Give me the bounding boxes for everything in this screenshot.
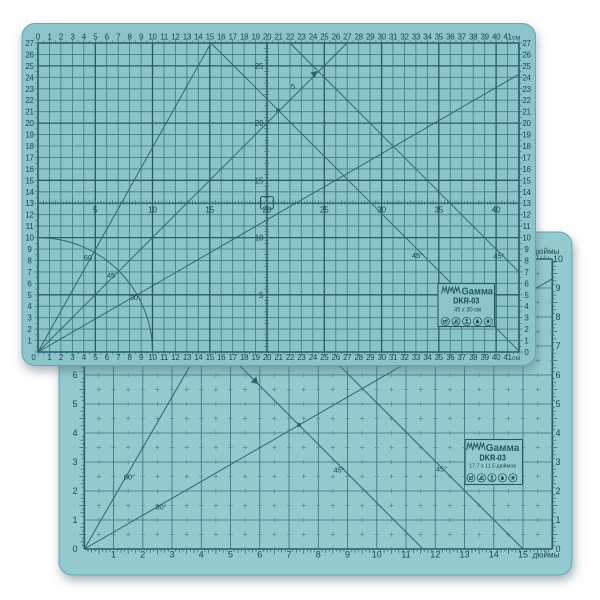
svg-text:38: 38: [469, 33, 478, 42]
svg-text:16: 16: [217, 33, 226, 42]
svg-text:30: 30: [377, 353, 386, 362]
svg-text:25: 25: [320, 33, 329, 42]
svg-text:23: 23: [522, 85, 531, 94]
svg-text:см: см: [512, 35, 520, 42]
svg-text:6: 6: [72, 370, 77, 380]
svg-text:11: 11: [26, 222, 35, 231]
svg-text:15: 15: [206, 33, 215, 42]
svg-text:29: 29: [366, 33, 375, 42]
svg-text:17: 17: [522, 153, 531, 162]
svg-text:18: 18: [240, 353, 249, 362]
svg-text:38: 38: [469, 353, 478, 362]
svg-text:20: 20: [263, 353, 272, 362]
svg-text:дюймы: дюймы: [532, 551, 559, 560]
svg-text:DKR-03: DKR-03: [479, 453, 506, 463]
svg-text:15: 15: [205, 206, 214, 215]
svg-text:22: 22: [25, 96, 34, 105]
svg-text:40: 40: [492, 353, 501, 362]
svg-text:36: 36: [446, 33, 455, 42]
svg-text:18: 18: [25, 142, 34, 151]
svg-text:21: 21: [522, 108, 531, 117]
svg-text:2: 2: [72, 486, 77, 496]
svg-text:16: 16: [522, 165, 531, 174]
svg-text:16: 16: [25, 165, 34, 174]
svg-text:12: 12: [522, 211, 531, 220]
svg-text:16: 16: [217, 353, 226, 362]
svg-text:26: 26: [332, 353, 341, 362]
svg-text:17: 17: [229, 353, 238, 362]
svg-text:45°: 45°: [412, 251, 423, 260]
svg-text:7: 7: [286, 550, 291, 560]
svg-text:20: 20: [263, 33, 272, 42]
svg-text:6: 6: [257, 550, 262, 560]
svg-text:5: 5: [555, 399, 560, 409]
svg-text:14: 14: [194, 353, 203, 362]
svg-text:33: 33: [412, 33, 421, 42]
svg-text:25: 25: [522, 62, 531, 71]
svg-text:1: 1: [555, 515, 560, 525]
svg-text:27: 27: [25, 39, 34, 48]
svg-text:19: 19: [522, 131, 531, 140]
svg-text:5: 5: [72, 399, 77, 409]
svg-text:27: 27: [343, 33, 352, 42]
svg-text:20: 20: [522, 119, 531, 128]
svg-text:39: 39: [480, 33, 489, 42]
svg-text:7: 7: [555, 341, 560, 351]
svg-text:60: 60: [84, 253, 92, 262]
svg-text:9: 9: [555, 283, 560, 293]
svg-text:23: 23: [25, 85, 34, 94]
svg-text:30°: 30°: [155, 503, 166, 512]
svg-text:5: 5: [259, 291, 264, 300]
svg-text:3: 3: [555, 457, 560, 467]
svg-text:15: 15: [25, 176, 34, 185]
svg-text:27: 27: [343, 353, 352, 362]
svg-text:см: см: [512, 355, 520, 362]
svg-text:10: 10: [255, 234, 264, 243]
svg-text:45: 45: [107, 271, 115, 280]
svg-text:20: 20: [25, 119, 34, 128]
svg-text:30: 30: [377, 33, 386, 42]
svg-text:15: 15: [255, 176, 264, 185]
svg-text:24: 24: [522, 73, 531, 82]
svg-text:13: 13: [459, 550, 469, 560]
svg-text:32: 32: [400, 33, 409, 42]
svg-text:23: 23: [297, 33, 306, 42]
svg-text:14: 14: [489, 550, 499, 560]
svg-text:31: 31: [389, 353, 398, 362]
svg-text:11: 11: [523, 222, 532, 231]
svg-text:15: 15: [518, 550, 528, 560]
svg-text:13: 13: [183, 353, 192, 362]
svg-text:29: 29: [366, 353, 375, 362]
svg-text:11: 11: [160, 353, 169, 362]
svg-text:21: 21: [274, 33, 283, 42]
svg-text:35: 35: [435, 33, 444, 42]
svg-text:25: 25: [25, 62, 34, 71]
svg-text:34: 34: [423, 353, 432, 362]
svg-text:18: 18: [522, 142, 531, 151]
svg-text:12: 12: [171, 33, 180, 42]
svg-text:22: 22: [286, 353, 295, 362]
svg-text:8: 8: [555, 312, 560, 322]
svg-text:DKR-03: DKR-03: [453, 296, 479, 306]
svg-text:4: 4: [199, 550, 204, 560]
svg-text:21: 21: [25, 108, 34, 117]
svg-text:34: 34: [423, 33, 432, 42]
svg-text:17.7 x 11.5 дюймов: 17.7 x 11.5 дюймов: [469, 463, 516, 470]
svg-text:35: 35: [435, 353, 444, 362]
svg-text:2: 2: [555, 486, 560, 496]
svg-text:12: 12: [171, 353, 180, 362]
svg-text:8: 8: [316, 550, 321, 560]
svg-text:5: 5: [93, 206, 98, 215]
svg-text:10: 10: [148, 33, 157, 42]
svg-text:13: 13: [25, 199, 34, 208]
svg-text:19: 19: [25, 131, 34, 140]
svg-text:37: 37: [458, 353, 467, 362]
svg-text:10: 10: [372, 550, 382, 560]
svg-text:24: 24: [309, 33, 318, 42]
svg-text:1: 1: [111, 550, 116, 560]
svg-text:22: 22: [522, 96, 531, 105]
svg-text:10: 10: [25, 234, 34, 243]
svg-text:26: 26: [522, 50, 531, 59]
svg-text:28: 28: [355, 353, 364, 362]
svg-text:13: 13: [183, 33, 192, 42]
svg-text:36: 36: [446, 353, 455, 362]
svg-text:11: 11: [160, 33, 169, 42]
svg-text:14: 14: [522, 188, 531, 197]
svg-text:26: 26: [332, 33, 341, 42]
svg-text:10: 10: [148, 353, 157, 362]
svg-text:25: 25: [320, 353, 329, 362]
svg-text:30: 30: [130, 293, 138, 302]
svg-text:45°: 45°: [333, 466, 344, 475]
svg-text:45°: 45°: [493, 252, 504, 261]
svg-text:12: 12: [25, 211, 34, 220]
svg-text:13: 13: [522, 199, 531, 208]
svg-text:3: 3: [169, 550, 174, 560]
svg-text:18: 18: [240, 33, 249, 42]
svg-text:19: 19: [251, 33, 260, 42]
svg-text:40: 40: [492, 206, 501, 215]
svg-text:39: 39: [480, 353, 489, 362]
svg-text:19: 19: [251, 353, 260, 362]
svg-text:37: 37: [458, 33, 467, 42]
svg-text:17: 17: [25, 153, 34, 162]
svg-text:17: 17: [229, 33, 238, 42]
svg-text:5: 5: [291, 82, 295, 91]
svg-text:23: 23: [297, 353, 306, 362]
svg-text:3: 3: [72, 457, 77, 467]
svg-text:10: 10: [148, 206, 157, 215]
svg-text:12: 12: [430, 550, 440, 560]
svg-text:28: 28: [355, 33, 364, 42]
svg-text:15: 15: [522, 176, 531, 185]
svg-text:31: 31: [389, 33, 398, 42]
svg-text:25: 25: [255, 62, 264, 71]
svg-text:25: 25: [320, 206, 329, 215]
svg-text:5: 5: [228, 550, 233, 560]
svg-text:27: 27: [522, 39, 531, 48]
svg-text:6: 6: [555, 370, 560, 380]
svg-text:22: 22: [286, 33, 295, 42]
svg-text:9: 9: [345, 550, 350, 560]
svg-text:45°: 45°: [436, 465, 447, 474]
svg-text:11: 11: [401, 550, 410, 560]
svg-text:45 x 30 см: 45 x 30 см: [454, 307, 481, 314]
svg-text:14: 14: [194, 33, 203, 42]
svg-text:2: 2: [140, 550, 145, 560]
svg-text:26: 26: [25, 50, 34, 59]
svg-text:32: 32: [400, 353, 409, 362]
svg-text:1: 1: [72, 515, 77, 525]
svg-text:10: 10: [522, 234, 531, 243]
svg-text:40: 40: [492, 33, 501, 42]
svg-text:24: 24: [309, 353, 318, 362]
svg-text:дюймы: дюймы: [532, 247, 559, 256]
svg-text:4: 4: [555, 428, 560, 438]
svg-text:14: 14: [25, 188, 34, 197]
svg-text:35: 35: [434, 206, 443, 215]
svg-text:21: 21: [274, 353, 283, 362]
svg-text:33: 33: [412, 353, 421, 362]
svg-text:15: 15: [206, 353, 215, 362]
svg-text:60°: 60°: [124, 473, 135, 482]
svg-text:0: 0: [72, 544, 77, 554]
svg-text:4: 4: [72, 428, 77, 438]
svg-text:24: 24: [25, 73, 34, 82]
